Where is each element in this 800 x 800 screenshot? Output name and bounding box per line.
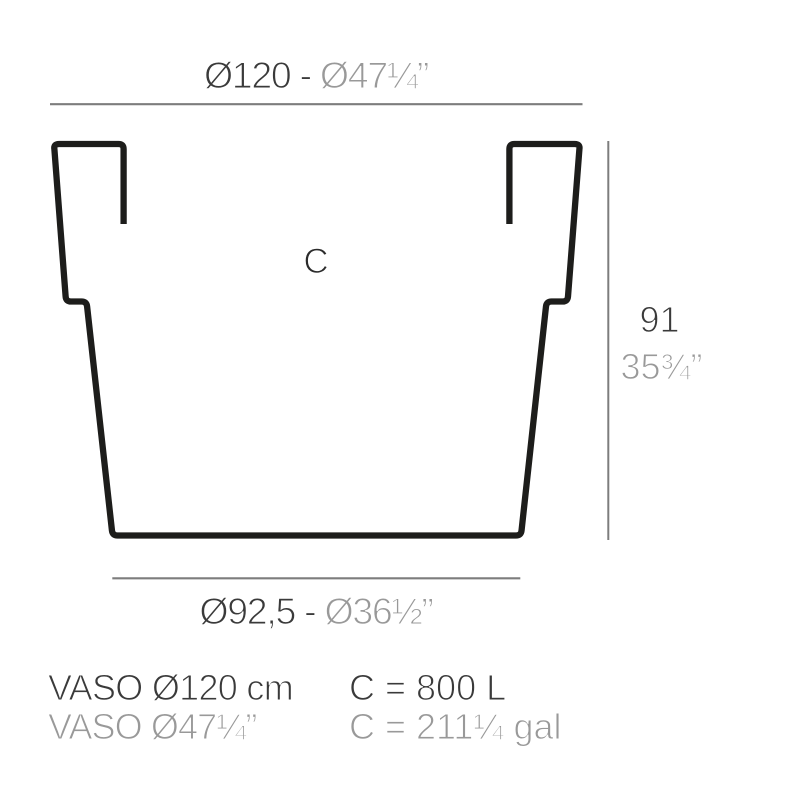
- svg-text:91: 91: [639, 299, 679, 340]
- svg-text:C = 800 L: C = 800 L: [349, 667, 506, 708]
- svg-text:Ø92,5 - Ø36½”: Ø92,5 - Ø36½”: [199, 590, 433, 632]
- svg-text:C = 211¼ gal: C = 211¼ gal: [349, 706, 561, 747]
- svg-text:35¾”: 35¾”: [620, 346, 702, 387]
- svg-text:Ø120 - Ø47¼”: Ø120 - Ø47¼”: [204, 54, 429, 96]
- svg-text:C: C: [303, 242, 328, 281]
- svg-text:VASO Ø120 cm: VASO Ø120 cm: [48, 667, 293, 708]
- svg-text:VASO Ø47¼”: VASO Ø47¼”: [48, 706, 256, 747]
